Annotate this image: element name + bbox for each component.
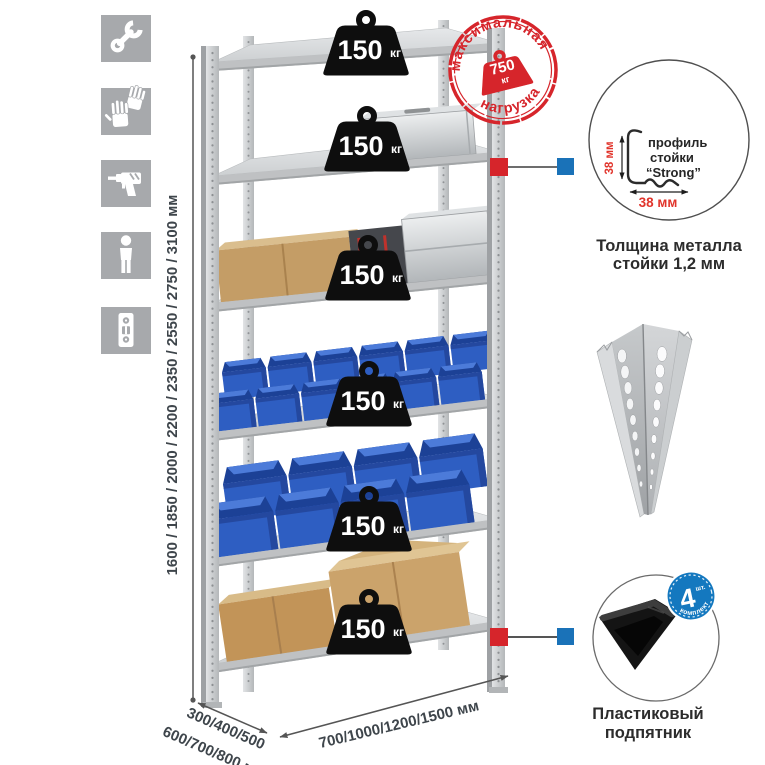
load-value-5: 150 [340,511,385,541]
blue-marker-top [557,158,574,175]
load-value-6: 150 [340,614,385,644]
infographic-svg: 1600 / 1850 / 2000 / 2200 / 2350 / 2550 … [0,0,765,765]
person-icon [101,232,151,279]
foot-caption-line2: подпятник [605,724,692,742]
load-unit-1: кг [390,46,401,60]
load-value-3: 150 [339,260,384,290]
load-unit-5: кг [393,522,404,536]
profile-caption-line1: Толщина металла [596,237,742,255]
load-unit-2: кг [391,142,402,156]
gloves-icon [101,84,151,135]
profile-label-line1: профиль [648,135,707,150]
profile-caption-line2: стойки 1,2 мм [613,255,725,273]
load-value-4: 150 [340,386,385,416]
profile-label-line2: стойки [650,150,694,165]
blue-marker-bottom [557,628,574,645]
profile-label-line3: “Strong” [646,165,701,180]
red-marker-top [490,158,508,176]
profile-dim-vertical: 38 мм [604,141,616,174]
load-value-1: 150 [337,35,382,65]
drill-icon [101,160,151,207]
foot-caption-line1: Пластиковый [592,705,703,723]
wrench-icon [101,15,151,62]
load-unit-4: кг [393,397,404,411]
level-icon [101,307,151,354]
load-value-2: 150 [338,131,383,161]
height-dimension-label: 1600 / 1850 / 2000 / 2200 / 2350 / 2550 … [164,195,181,576]
profile-dim-horizontal: 38 мм [639,195,678,210]
load-unit-6: кг [393,625,404,639]
shelving-infographic: 1600 / 1850 / 2000 / 2200 / 2350 / 2550 … [0,0,765,765]
profile-callout: 38 мм 38 мм профиль стойки “Strong” [589,60,749,220]
red-marker-bottom [490,628,508,646]
load-unit-3: кг [392,271,403,285]
